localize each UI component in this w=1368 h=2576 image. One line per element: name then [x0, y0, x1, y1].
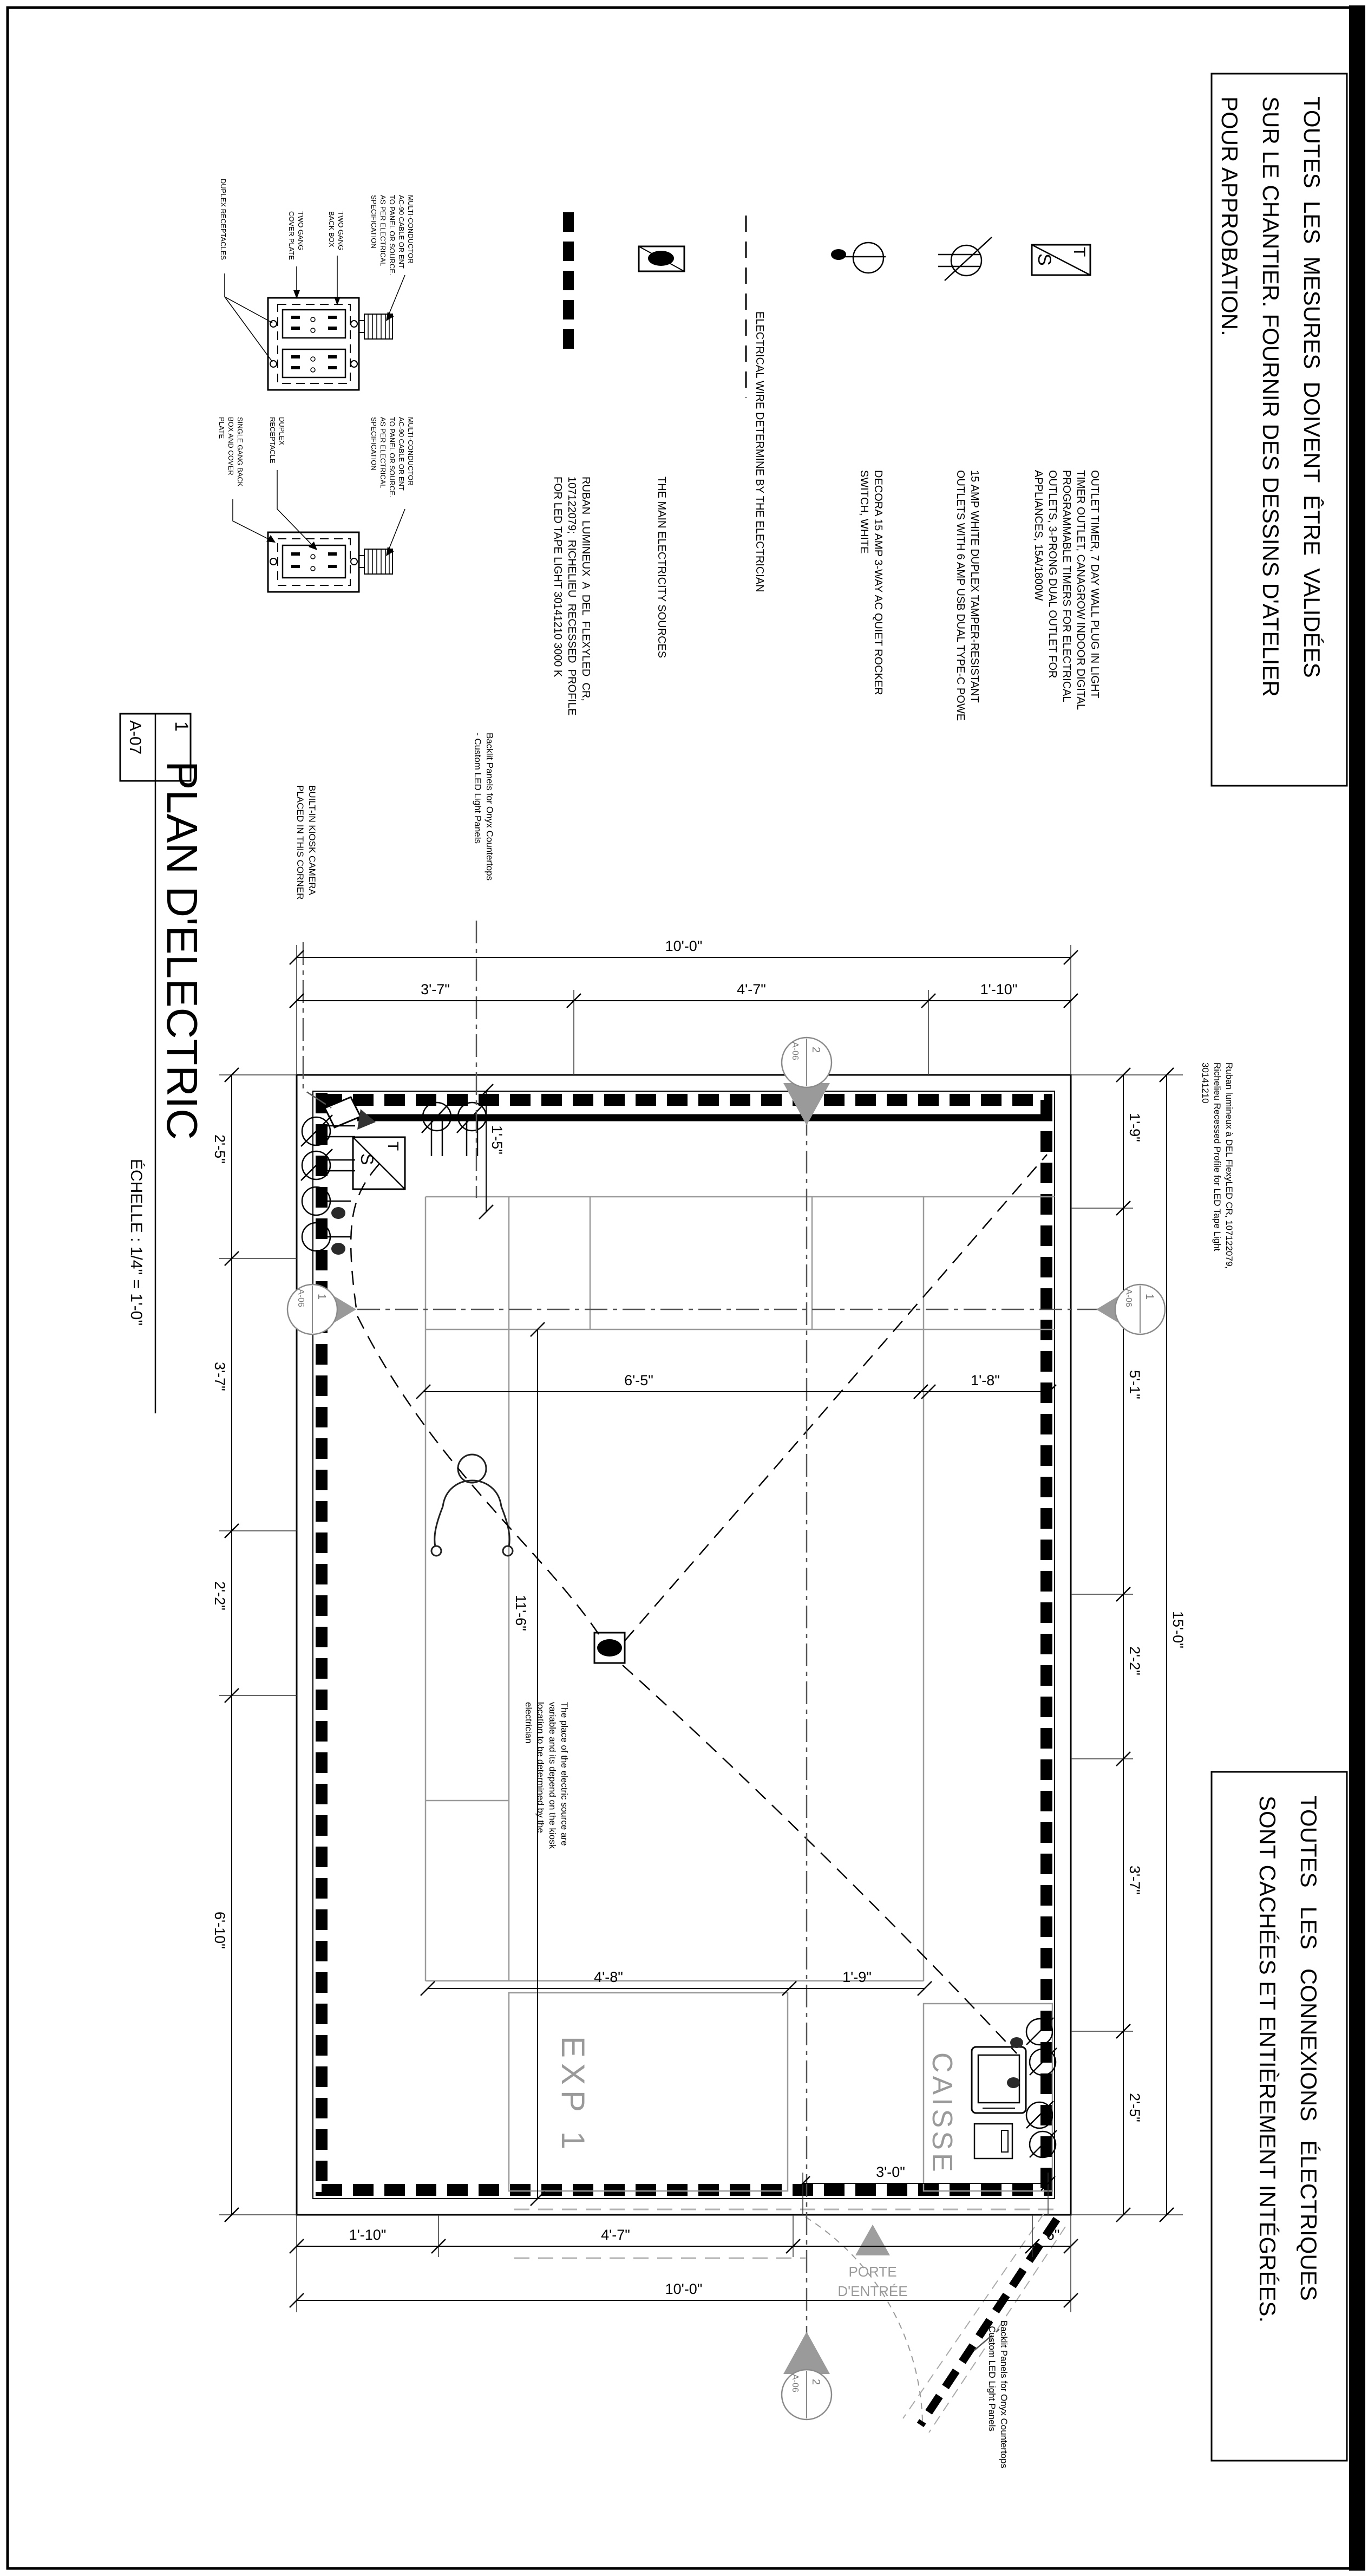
legend-timer-line5: APPLIANCES, 15A/1800W	[1033, 470, 1044, 601]
dim-top-seg1: 3'-7"	[395, 982, 476, 997]
kiosk-pos-unit	[972, 2047, 1026, 2158]
detail1-duplex-label: DUPLEX RECEPTACLES	[220, 179, 227, 260]
plan-walls	[297, 1075, 1071, 2215]
dim-right-seg1: 1'-9"	[1127, 1113, 1142, 1142]
source-note-line1: The place of the electric source are	[560, 1702, 569, 1846]
legend-timer-line1: OUTLET TIMER, 7 DAY WALL PLUG IN LIGHT	[1089, 470, 1100, 699]
legend-ruban-line1: RUBAN LUMINEUX A DEL FLEXYLED CR,	[580, 477, 591, 701]
backlit-bottom-line2: - Custom LED Light Panels	[987, 2320, 997, 2431]
legend-outlet-line2: OUTLETS WITH 6 AMP USB DUAL TYPE-C POWE	[955, 470, 966, 721]
door-label-line1: PORTE	[819, 2265, 927, 2279]
section-and-leader-lines	[303, 921, 1098, 2350]
note-top-line1: TOUTES LES MESURES DOIVENT ÊTRE VALIDÉES	[1300, 96, 1323, 678]
door-direction-arrow	[855, 2225, 890, 2255]
ruban-note-line3: 30141210	[1201, 1062, 1210, 1104]
detail2-duplex-line2: RECEPTACLE	[269, 417, 276, 464]
dim-right-seg3: 2'-2"	[1127, 1646, 1142, 1675]
detail1-cable-line2: AC-90 CABLE OR ENT	[398, 195, 405, 269]
person-figure	[431, 1455, 513, 1556]
detail2-cable-line1: MULTI-CONDUCTOR	[407, 417, 414, 486]
legend-timer-line4: OUTLETS, 3-PRONG DUAL OUTLET FOR	[1047, 470, 1058, 679]
detail2-cable-line4: AS PER ELECTRICAL	[379, 417, 387, 488]
detail2-cable-line2: AC-90 CABLE OR ENT	[398, 417, 405, 491]
dim-right-seg2: 5'-1"	[1127, 1370, 1142, 1399]
legend-ruban-line3: FOR LED TAPE LIGHT 30141210 3000 K	[552, 477, 563, 677]
marker-top-number: 2	[810, 1047, 821, 1053]
camera-note-line1: BUILT-IN KIOSK CAMERA	[307, 785, 317, 895]
note-bottom-line2: SONT CACHÉES ET ENTIÈREMENT INTÉGRÉES.	[1256, 1796, 1279, 2323]
dim-right-overall: 15'-0"	[1170, 1611, 1185, 1648]
dim-top-seg3: 1'-10"	[958, 982, 1039, 997]
dim-left-seg3: 2'-2"	[212, 1581, 227, 1610]
dim-exp-width: 4'-8"	[568, 1970, 649, 1985]
timer-symbol-letter-s: S	[1035, 253, 1053, 266]
dim-left-seg2: 3'-7"	[212, 1362, 227, 1391]
outlet-top-wall	[422, 1099, 488, 1156]
marker-top-sheet: A-06	[790, 1042, 799, 1060]
counter-outlines	[426, 1197, 1055, 2191]
door-label-line2: D'ENTRÉE	[819, 2284, 927, 2298]
extension-lines	[219, 945, 1183, 2312]
scale-label: ÉCHELLE : 1/4" = 1'-0"	[128, 1159, 144, 1326]
section-marker-top	[782, 1038, 832, 1125]
detail2-box-line3: PLATE	[218, 417, 225, 439]
electrical-wires	[351, 1155, 1047, 2053]
marker-left-sheet: A-06	[296, 1289, 305, 1307]
note-top-line3: POUR APPROBATION.	[1218, 96, 1241, 336]
detail1-cable-line3: TO PANEL OR SOURCE.	[389, 195, 396, 276]
ruban-led-strip	[322, 1093, 1052, 2196]
legend-outlet-line1: 15 AMP WHITE DUPLEX TAMPER-RESISTANT	[969, 470, 980, 703]
backlit-top-line2: - Custom LED Light Panels	[473, 733, 482, 844]
dim-right-seg4: 3'-7"	[1127, 1866, 1142, 1895]
marker-bottom-sheet: A-06	[790, 2374, 799, 2392]
detail2-cable-line3: TO PANEL OR SOURCE.	[389, 417, 396, 498]
dim-bottom-overall: 10'-0"	[643, 2282, 724, 2297]
room-label-exp1: EXP 1	[557, 2036, 589, 2155]
source-note-line2: variable and its depend on the kiosk	[548, 1702, 557, 1849]
two-gang-receptacle-detail	[225, 256, 405, 390]
sheet-ref: A-07	[127, 720, 143, 754]
dim-exp-gap: 1'-9"	[816, 1970, 898, 1985]
backlit-top-line1: Backlit Panels for Onyx Countertops	[485, 733, 494, 881]
dim-top-overall: 10'-0"	[643, 939, 724, 954]
plan-timer-letter-s: S	[358, 1153, 376, 1165]
dim-left-seg1: 2'-5"	[212, 1134, 227, 1164]
source-note-line3: location to be determined by the	[536, 1702, 545, 1833]
dim-right-seg5: 2'-5"	[1127, 2093, 1142, 2122]
room-label-caisse: CAISSE	[928, 2052, 956, 2175]
legend-switch-line1: DECORA 15 AMP 3-WAY AC QUIET ROCKER	[873, 470, 883, 695]
ruban-note-line1: Ruban lumineux à DEL FlexyLED CR, 107122…	[1225, 1062, 1234, 1269]
detail2-duplex-line1: DUPLEX	[278, 417, 285, 445]
detail2-cable-line5: SPECIFICATION	[370, 417, 377, 471]
dim-top-seg2: 4'-7"	[711, 982, 792, 997]
main-source-in-plan	[594, 1633, 625, 1663]
note-bottom-line1: TOUTES LES CONNEXIONS ÉLECTRIQUES	[1297, 1796, 1320, 2301]
duplex-outlet-symbol	[938, 237, 992, 281]
drawing-sheet: TOUTES LES MESURES DOIVENT ÊTRE VALIDÉES…	[0, 0, 1368, 2576]
dim-room-length: 11'-6"	[513, 1595, 528, 1631]
marker-bottom-number: 2	[810, 2379, 821, 2385]
detail1-cover-line2: COVER PLATE	[288, 211, 295, 260]
single-gang-receptacle-detail	[233, 470, 405, 592]
sheet-edge-bar	[1349, 5, 1365, 2571]
plan-timer-letter-t: T	[385, 1142, 401, 1151]
backlit-bottom-line1: Backlit Panels for Onyx Countertops	[999, 2320, 1009, 2468]
detail2-box-line1: SINGLE GANG BACK	[237, 417, 244, 487]
dim-counter-depth: 1'-5"	[489, 1125, 504, 1155]
detail2-box-line2: BOX AND COVER	[227, 417, 234, 475]
legend-wire-line1: ELECTRICAL WIRE DETERMINE BY THE ELECTRI…	[754, 311, 765, 592]
marker-left-number: 1	[316, 1294, 327, 1300]
dim-bottom-seg2: 4'-7"	[575, 2228, 656, 2242]
detail1-cable-line5: SPECIFICATION	[370, 195, 377, 249]
dim-bottom-seg1: 1'-10"	[327, 2228, 408, 2242]
legend-timer-line2: TIMER OUTLET, CANAGROW INDOOR DIGITAL	[1075, 470, 1086, 710]
dim-door-width: 3'-0"	[850, 2165, 931, 2180]
detail-number: 1	[160, 721, 191, 732]
camera-note-line2: PLACED IN THIS CORNER	[296, 785, 305, 899]
rocker-switch-symbol	[831, 243, 886, 273]
note-top-line2: SUR LE CHANTIER. FOURNIR DES DESSINS D'A…	[1259, 96, 1282, 697]
detail1-box-line2: BACK BOX	[328, 211, 335, 247]
detail1-cover-line1: TWO GANG	[297, 211, 304, 250]
detail1-cable-line1: MULTI-CONDUCTOR	[407, 195, 414, 264]
marker-right-number: 1	[1144, 1294, 1155, 1300]
timer-symbol-letter-t: T	[1071, 247, 1087, 257]
main-source-symbol	[639, 246, 684, 271]
section-marker-bottom	[782, 2332, 832, 2420]
detail1-cable-line4: AS PER ELECTRICAL	[379, 195, 387, 266]
legend-switch-line2: SWITCH, WHITE	[859, 470, 869, 553]
outlet-left-wall	[301, 1115, 355, 1181]
ruban-note-line2: Richelieu Recessed Profile for LED Tape …	[1213, 1062, 1222, 1251]
dim-floor-to-wall: 1'-8"	[945, 1373, 1026, 1388]
source-note-line4: electrician	[524, 1702, 533, 1744]
legend-source-line1: THE MAIN ELECTRICITY SOURCES	[656, 477, 667, 658]
legend-timer-line3: PROGRAMMABLE TIMERS FOR ELECTRICAL	[1061, 470, 1072, 702]
dim-bottom-seg3: 6"	[1023, 2228, 1083, 2242]
plan-linework	[0, 0, 1368, 2576]
dim-left-seg4: 6'-10"	[212, 1912, 227, 1949]
legend-ruban-line2: 107122079; RICHELIEU RECESSED PROFILE	[566, 477, 577, 715]
detail1-box-line1: TWO GANG	[337, 211, 344, 250]
marker-right-sheet: A-06	[1124, 1289, 1133, 1307]
dim-floor-width: 6'-5"	[598, 1373, 679, 1388]
page-title: PLAN D'ELECTRIC	[160, 761, 204, 1140]
